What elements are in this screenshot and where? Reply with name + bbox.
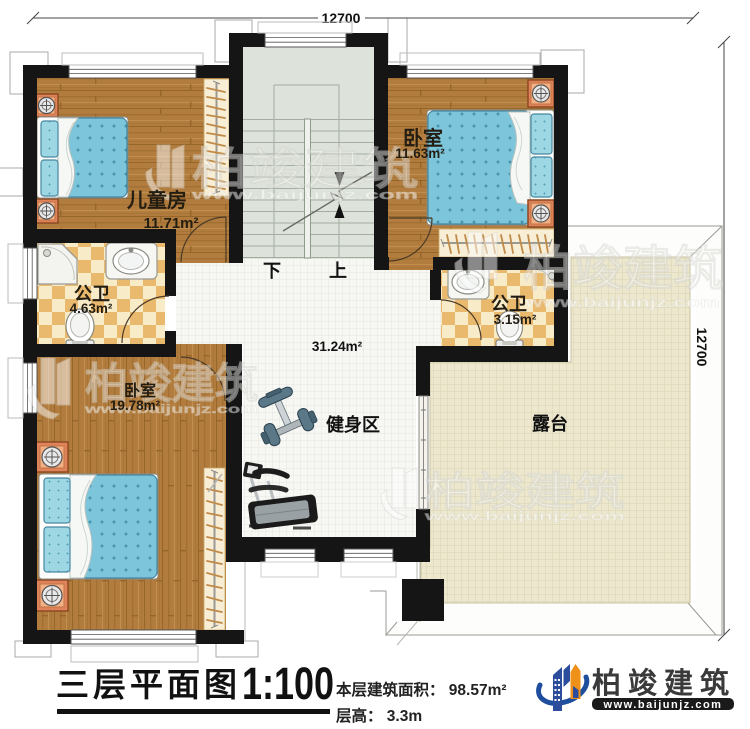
svg-text:11.71m²: 11.71m²	[143, 215, 198, 232]
svg-text:www.baijunjz.com: www.baijunjz.com	[190, 187, 418, 202]
svg-text:www.baijunjz.com: www.baijunjz.com	[423, 509, 625, 523]
svg-text:19.78m²: 19.78m²	[110, 398, 161, 413]
svg-text:公卫: 公卫	[491, 294, 527, 314]
svg-text:www.baijunjz.com: www.baijunjz.com	[603, 699, 723, 711]
svg-text:层高： 3.3m: 层高： 3.3m	[336, 706, 422, 725]
svg-text:11.63m²: 11.63m²	[395, 146, 445, 161]
svg-text:下: 下	[263, 261, 281, 281]
svg-text:本层建筑面积： 98.57m²: 本层建筑面积： 98.57m²	[336, 680, 507, 699]
svg-text:上: 上	[329, 261, 347, 281]
svg-text:12700: 12700	[694, 328, 710, 367]
svg-text:www.baijunjz.com: www.baijunjz.com	[523, 294, 720, 310]
svg-text:3.15m²: 3.15m²	[494, 312, 537, 327]
svg-text:4.63m²: 4.63m²	[70, 301, 113, 316]
svg-text:柏竣建筑: 柏竣建筑	[592, 666, 736, 700]
svg-text:三层平面图: 三层平面图	[56, 666, 241, 703]
svg-text:12700: 12700	[322, 10, 361, 26]
svg-text:柏竣建筑: 柏竣建筑	[425, 470, 625, 514]
svg-text:儿童房: 儿童房	[126, 188, 187, 212]
svg-text:31.24m²: 31.24m²	[312, 339, 363, 354]
svg-text:健身区: 健身区	[326, 414, 380, 435]
svg-text:1:100: 1:100	[242, 658, 334, 709]
svg-text:露台: 露台	[532, 413, 568, 434]
svg-text:柏竣建筑: 柏竣建筑	[523, 243, 723, 296]
